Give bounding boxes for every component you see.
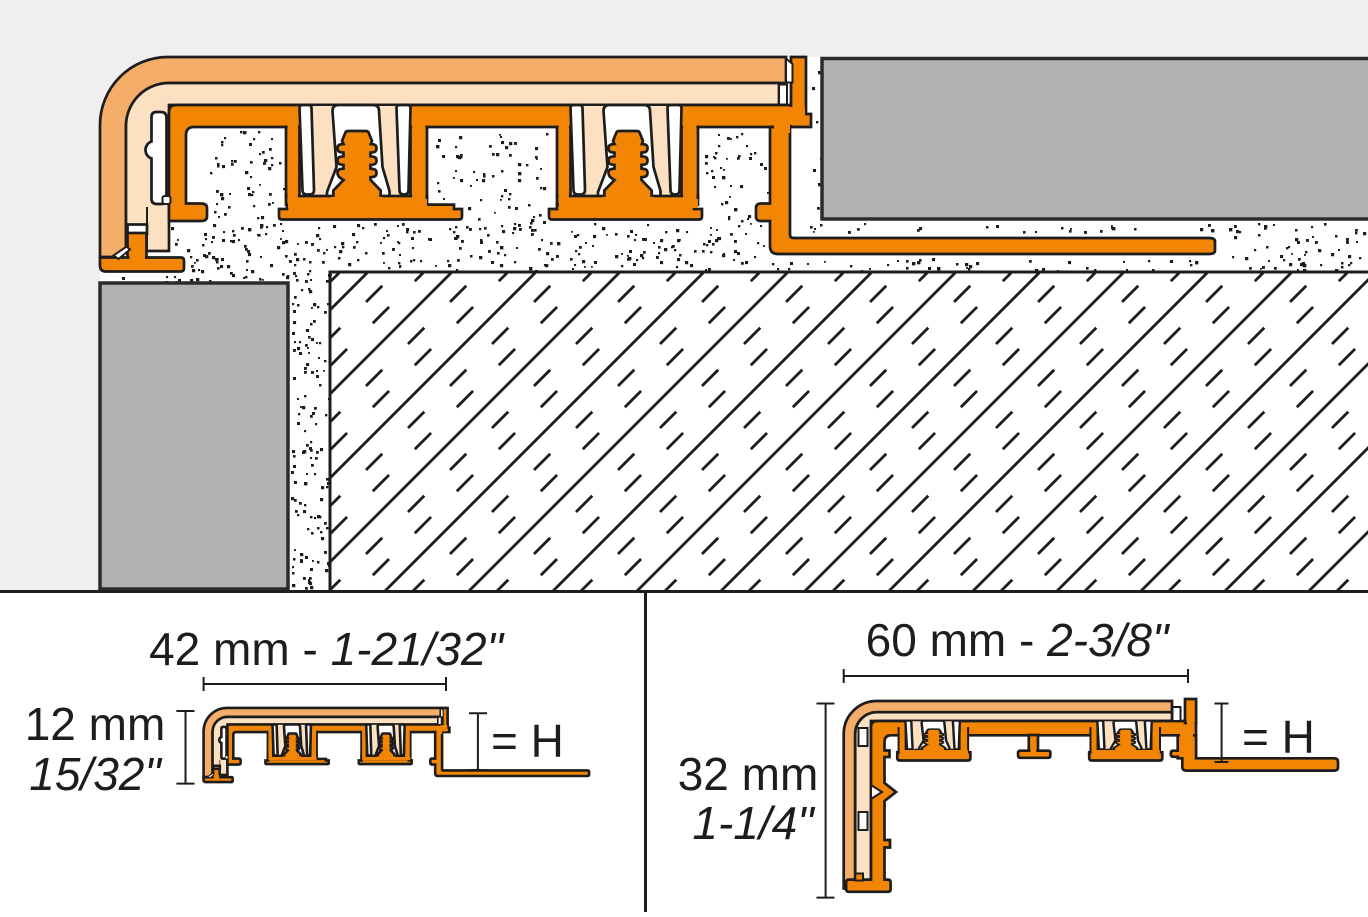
svg-text:60 mm - 2-3/8": 60 mm - 2-3/8" [866, 614, 1171, 666]
svg-text:= H: = H [491, 715, 564, 767]
svg-text:32 mm: 32 mm [678, 748, 819, 800]
svg-text:42 mm - 1-21/32": 42 mm - 1-21/32" [149, 623, 505, 675]
svg-text:1-1/4": 1-1/4" [692, 797, 816, 849]
svg-text:15/32": 15/32" [29, 748, 163, 800]
svg-text:= H: = H [1242, 711, 1315, 763]
svg-text:12 mm: 12 mm [25, 698, 166, 750]
